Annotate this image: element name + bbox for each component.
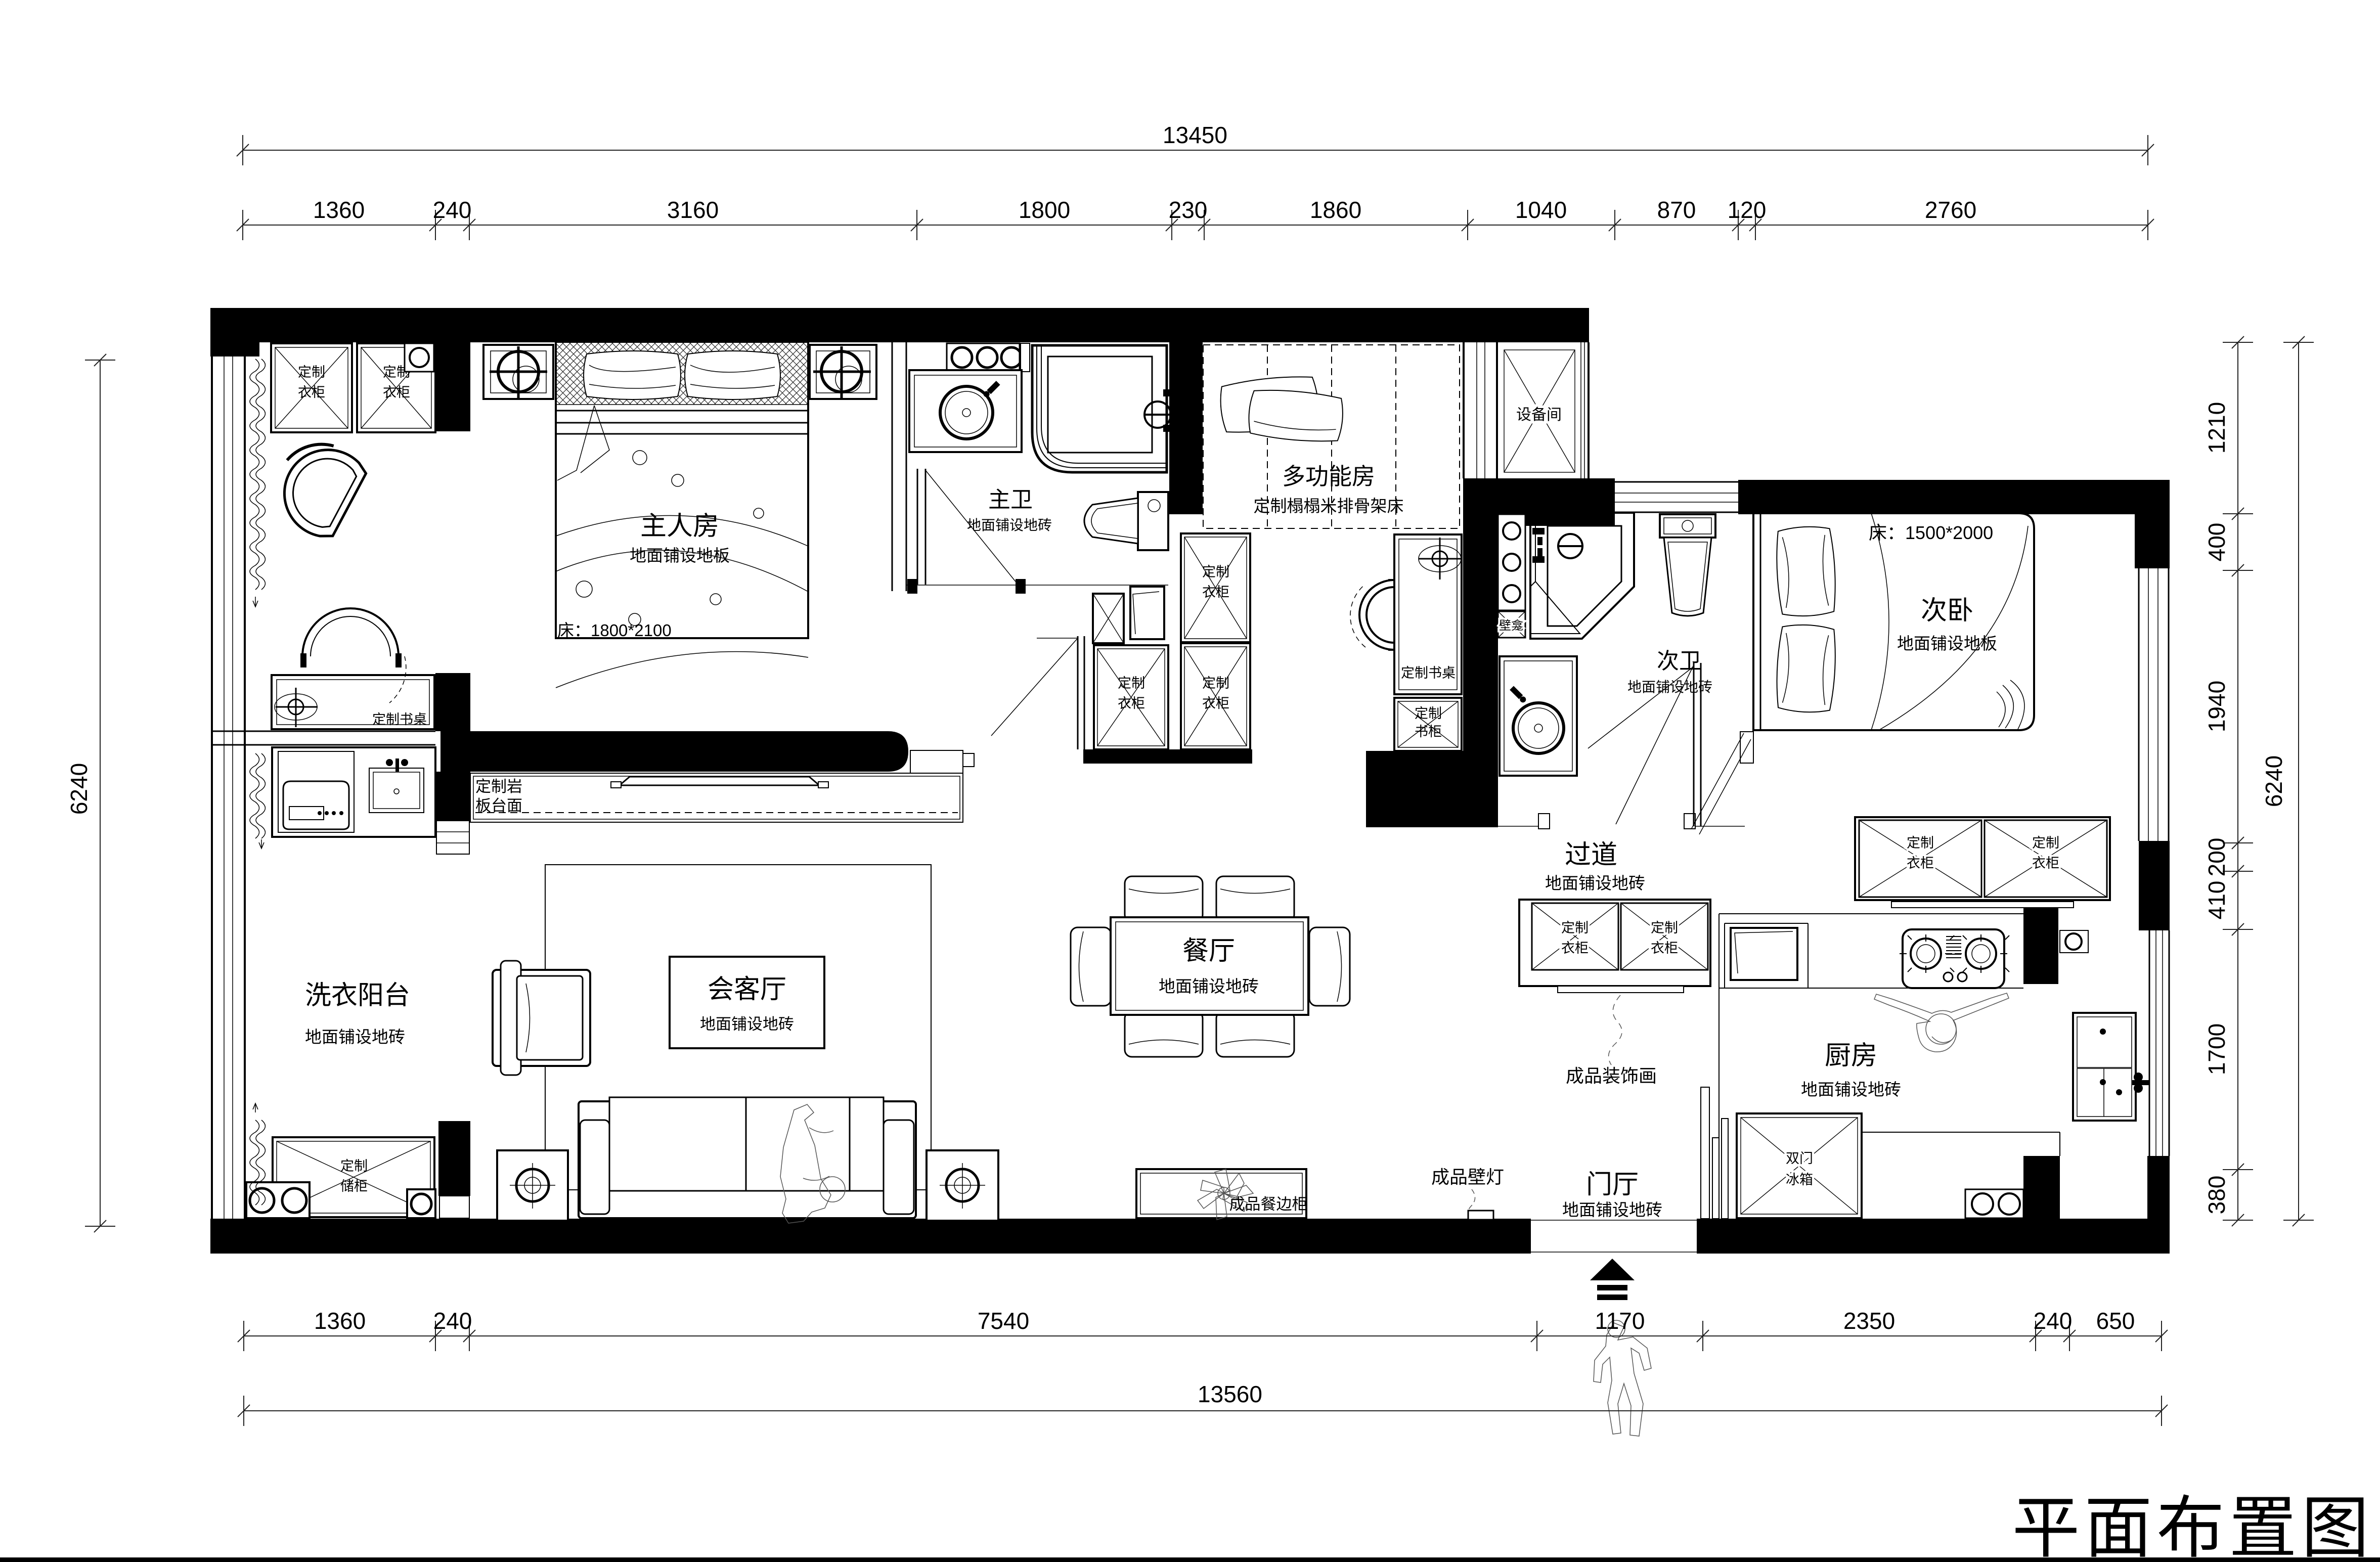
svg-text:13560: 13560	[1198, 1381, 1262, 1407]
svg-text:230: 230	[1169, 197, 1208, 223]
svg-text:成品壁灯: 成品壁灯	[1431, 1167, 1504, 1187]
svg-text:定制书桌: 定制书桌	[372, 712, 427, 727]
svg-text:衣柜: 衣柜	[383, 385, 410, 400]
svg-text:定制: 定制	[298, 365, 325, 380]
svg-text:6240: 6240	[2261, 755, 2287, 807]
svg-text:地面铺设地板: 地面铺设地板	[630, 546, 730, 565]
svg-text:地面铺设地砖: 地面铺设地砖	[967, 517, 1052, 533]
svg-text:1860: 1860	[1310, 197, 1361, 223]
svg-text:1700: 1700	[2203, 1023, 2230, 1075]
svg-text:主卫: 主卫	[988, 487, 1033, 512]
svg-text:1210: 1210	[2203, 402, 2230, 454]
svg-text:定制: 定制	[1202, 564, 1229, 579]
svg-text:定制: 定制	[1561, 920, 1589, 935]
svg-text:厨房: 厨房	[1825, 1041, 1877, 1070]
svg-text:1360: 1360	[314, 1308, 366, 1334]
svg-text:定制: 定制	[1202, 676, 1229, 691]
svg-text:1040: 1040	[1515, 197, 1567, 223]
svg-text:定制: 定制	[2032, 835, 2059, 851]
svg-text:410: 410	[2203, 881, 2230, 920]
svg-text:240: 240	[2034, 1308, 2073, 1334]
svg-text:餐厅: 餐厅	[1182, 936, 1235, 966]
svg-text:2350: 2350	[1843, 1308, 1895, 1334]
svg-text:400: 400	[2203, 523, 2230, 562]
svg-text:定制: 定制	[1907, 835, 1934, 851]
svg-text:衣柜: 衣柜	[1118, 696, 1145, 711]
svg-text:冰箱: 冰箱	[1786, 1172, 1813, 1187]
svg-text:地面铺设地板: 地面铺设地板	[1897, 634, 1997, 653]
svg-text:地面铺设地砖: 地面铺设地砖	[1159, 977, 1259, 996]
svg-text:1170: 1170	[1595, 1308, 1645, 1334]
svg-text:地面铺设地砖: 地面铺设地砖	[305, 1028, 405, 1046]
svg-text:过道: 过道	[1565, 840, 1617, 870]
svg-text:6240: 6240	[66, 763, 92, 815]
svg-text:成品餐边柜: 成品餐边柜	[1229, 1195, 1308, 1213]
svg-text:1800: 1800	[1019, 197, 1070, 223]
svg-text:定制: 定制	[1118, 676, 1145, 691]
svg-text:2760: 2760	[1925, 197, 1976, 223]
svg-text:240: 240	[433, 197, 472, 223]
svg-text:地面铺设地砖: 地面铺设地砖	[1562, 1200, 1662, 1219]
svg-text:板台面: 板台面	[475, 797, 522, 815]
svg-text:定制: 定制	[1415, 706, 1442, 721]
svg-text:衣柜: 衣柜	[2032, 856, 2059, 871]
svg-text:门厅: 门厅	[1586, 1170, 1639, 1199]
svg-text:120: 120	[1728, 197, 1767, 223]
svg-text:主人房: 主人房	[640, 512, 719, 541]
svg-text:衣柜: 衣柜	[298, 385, 325, 400]
svg-text:衣柜: 衣柜	[1651, 941, 1678, 956]
svg-text:定制岩: 定制岩	[475, 778, 522, 795]
svg-text:次卫: 次卫	[1657, 649, 1701, 674]
svg-text:7540: 7540	[978, 1308, 1029, 1334]
svg-text:定制书桌: 定制书桌	[1401, 665, 1456, 681]
svg-text:1360: 1360	[313, 197, 365, 223]
svg-text:储柜: 储柜	[340, 1179, 368, 1194]
svg-text:衣柜: 衣柜	[1202, 585, 1229, 600]
svg-text:定制: 定制	[1651, 920, 1678, 935]
svg-text:衣柜: 衣柜	[1561, 941, 1589, 956]
svg-text:1940: 1940	[2203, 681, 2230, 732]
svg-text:13450: 13450	[1163, 122, 1227, 148]
svg-text:地面铺设地砖: 地面铺设地砖	[1801, 1080, 1901, 1099]
svg-text:书柜: 书柜	[1415, 724, 1442, 739]
svg-text:地面铺设地砖: 地面铺设地砖	[1545, 874, 1645, 892]
svg-text:200: 200	[2203, 838, 2230, 877]
svg-text:衣柜: 衣柜	[1202, 696, 1229, 711]
svg-text:定制: 定制	[340, 1158, 368, 1174]
svg-text:380: 380	[2203, 1176, 2230, 1215]
svg-text:3160: 3160	[667, 197, 719, 223]
svg-text:设备间: 设备间	[1516, 407, 1562, 423]
svg-text:次卧: 次卧	[1921, 596, 1973, 626]
svg-text:870: 870	[1657, 197, 1696, 223]
svg-text:240: 240	[433, 1308, 472, 1334]
svg-text:多功能房: 多功能房	[1282, 463, 1375, 489]
svg-text:洗衣阳台: 洗衣阳台	[305, 981, 410, 1010]
svg-text:双门: 双门	[1786, 1151, 1813, 1166]
svg-text:床：1800*2100: 床：1800*2100	[557, 621, 672, 640]
svg-text:成品装饰画: 成品装饰画	[1566, 1065, 1657, 1086]
svg-text:650: 650	[2096, 1308, 2135, 1334]
svg-text:壁龛: 壁龛	[1499, 619, 1523, 633]
svg-text:床：1500*2000: 床：1500*2000	[1869, 522, 1993, 543]
svg-text:衣柜: 衣柜	[1907, 856, 1934, 871]
svg-text:地面铺设地砖: 地面铺设地砖	[1627, 679, 1712, 695]
svg-text:地面铺设地砖: 地面铺设地砖	[700, 1015, 794, 1033]
svg-text:会客厅: 会客厅	[708, 975, 786, 1004]
svg-text:平面布置图: 平面布置图	[2012, 1491, 2373, 1562]
svg-text:定制榻榻米排骨架床: 定制榻榻米排骨架床	[1254, 497, 1404, 515]
